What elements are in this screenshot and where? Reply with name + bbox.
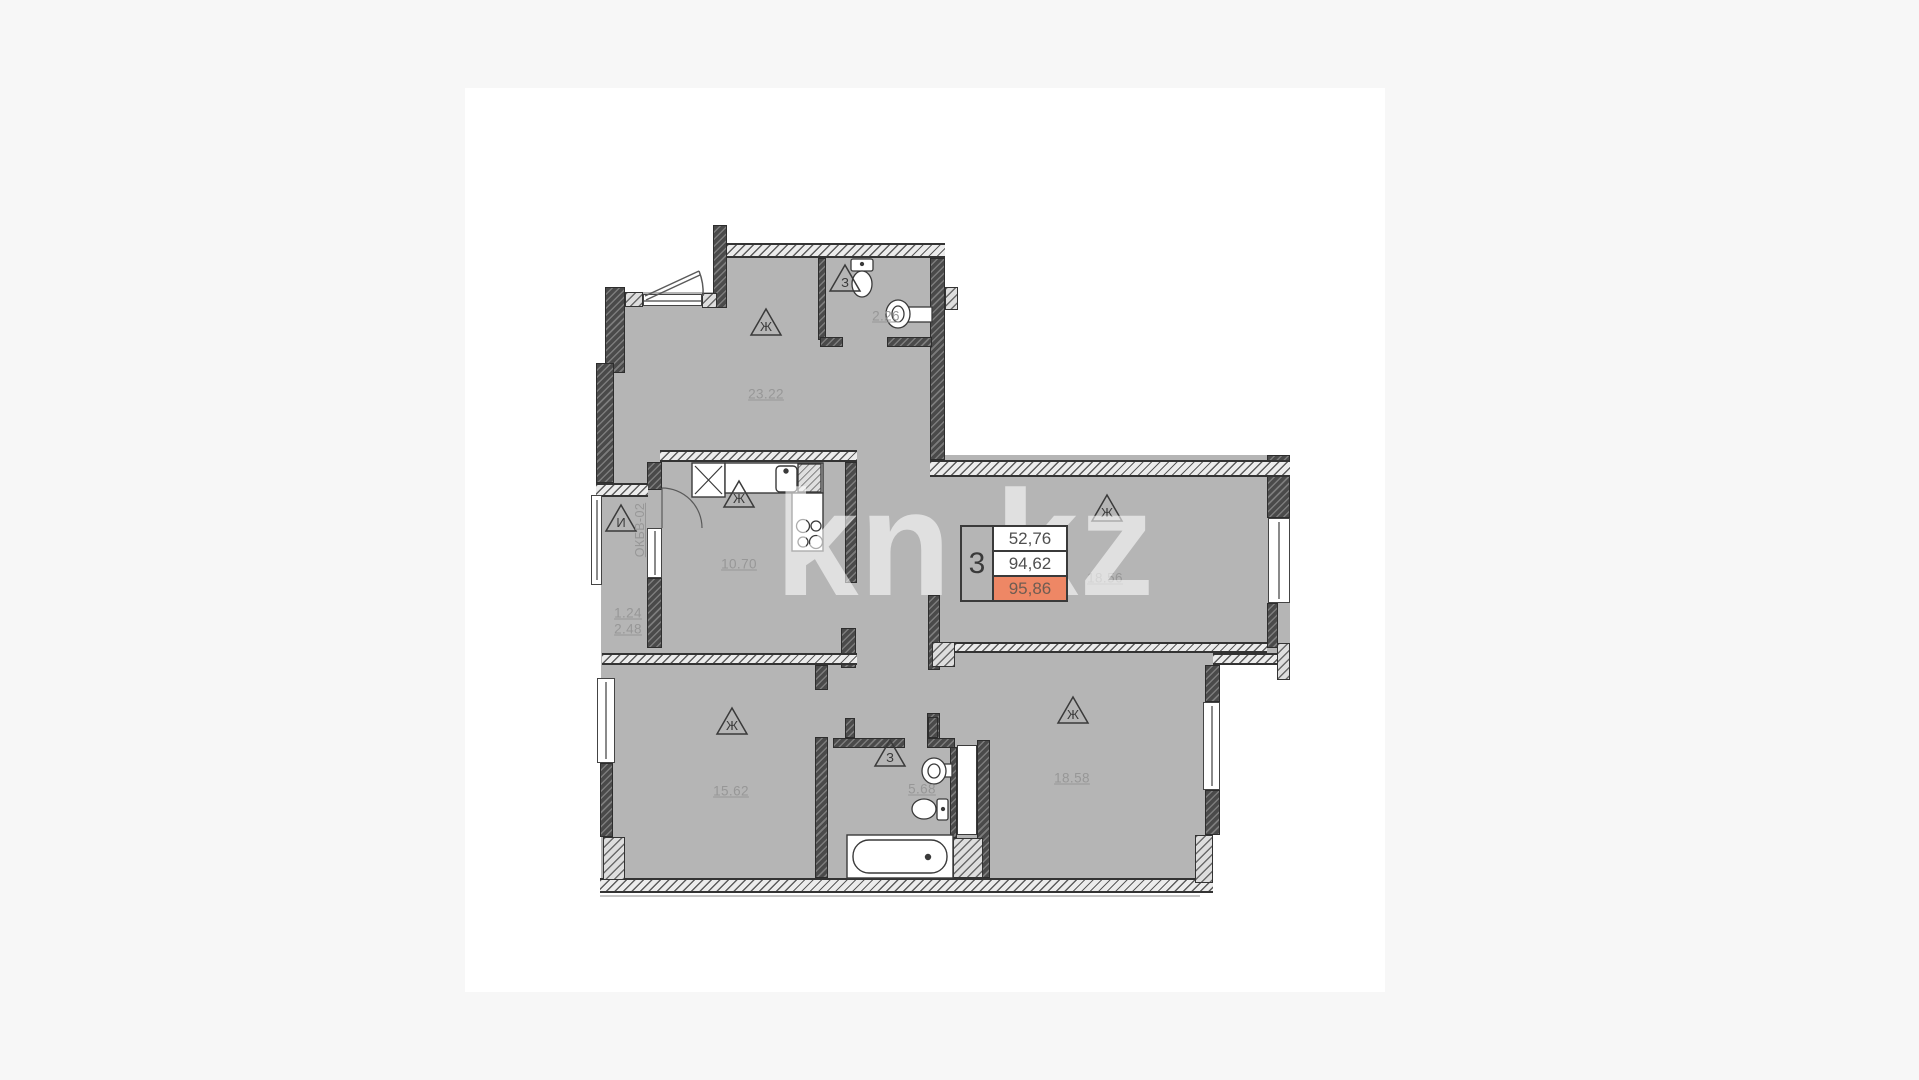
room-area-label: 1.24 xyxy=(614,606,642,621)
apartment-area-value: 94,62 xyxy=(994,552,1066,577)
wall xyxy=(932,642,955,667)
room-area-label: 23.22 xyxy=(748,387,784,402)
wall xyxy=(887,337,932,347)
wall xyxy=(600,878,1213,893)
wall xyxy=(1195,835,1213,883)
wall xyxy=(1277,643,1290,680)
wall xyxy=(647,578,662,648)
wall xyxy=(605,287,625,373)
wall xyxy=(930,258,945,460)
wall xyxy=(600,763,613,837)
duct-shaft xyxy=(957,745,977,835)
room-area-label: 18.56 xyxy=(1087,571,1123,586)
room-area-label: 5.68 xyxy=(908,782,936,797)
wall xyxy=(660,450,857,462)
wall xyxy=(953,838,983,878)
living-area-value: 52,76 xyxy=(994,527,1066,552)
room-area-label: 10.70 xyxy=(721,557,757,572)
wall xyxy=(603,837,625,880)
wall xyxy=(596,483,648,497)
room-count: 3 xyxy=(962,527,994,600)
room-area-label: 2.26 xyxy=(872,309,900,324)
floor-plan-page: Ж З Ж И Ж Ж З Ж 23.22 2.26 10.70 ОКБВ-02… xyxy=(0,0,1919,1080)
plan-outline xyxy=(600,895,1200,897)
outside-notch xyxy=(596,228,713,292)
window-jamb xyxy=(625,292,643,307)
wall xyxy=(1205,665,1220,702)
wall xyxy=(647,462,662,490)
window xyxy=(591,495,602,585)
wall xyxy=(833,738,905,748)
wall xyxy=(602,653,857,665)
balcony-door-window xyxy=(647,528,662,578)
window-block-code-label: ОКБВ-02 xyxy=(633,503,647,557)
wall xyxy=(845,718,855,738)
wall xyxy=(818,258,826,340)
wall xyxy=(1267,603,1278,648)
wall xyxy=(1205,790,1220,835)
wall xyxy=(820,337,843,347)
wall xyxy=(596,363,614,483)
room-area-label: 18.58 xyxy=(1054,771,1090,786)
room-area-label: 15.62 xyxy=(713,784,749,799)
room-area-label: 2.48 xyxy=(614,622,642,637)
wall xyxy=(1213,653,1277,665)
window xyxy=(597,678,615,763)
wall xyxy=(950,747,957,838)
wall xyxy=(845,462,857,583)
wall xyxy=(815,665,828,690)
window xyxy=(1268,518,1290,603)
wall xyxy=(815,737,828,878)
total-area-value: 95,86 xyxy=(994,577,1066,600)
window-jamb xyxy=(702,293,717,308)
wall xyxy=(928,717,938,738)
window xyxy=(643,294,702,306)
radiator-shaft xyxy=(945,287,958,310)
wall xyxy=(955,642,1267,653)
area-summary-rows: 52,76 94,62 95,86 xyxy=(994,527,1066,600)
window xyxy=(1203,702,1220,790)
wall xyxy=(930,460,1290,477)
area-summary-table: 3 52,76 94,62 95,86 xyxy=(960,525,1068,602)
wall xyxy=(727,243,945,258)
